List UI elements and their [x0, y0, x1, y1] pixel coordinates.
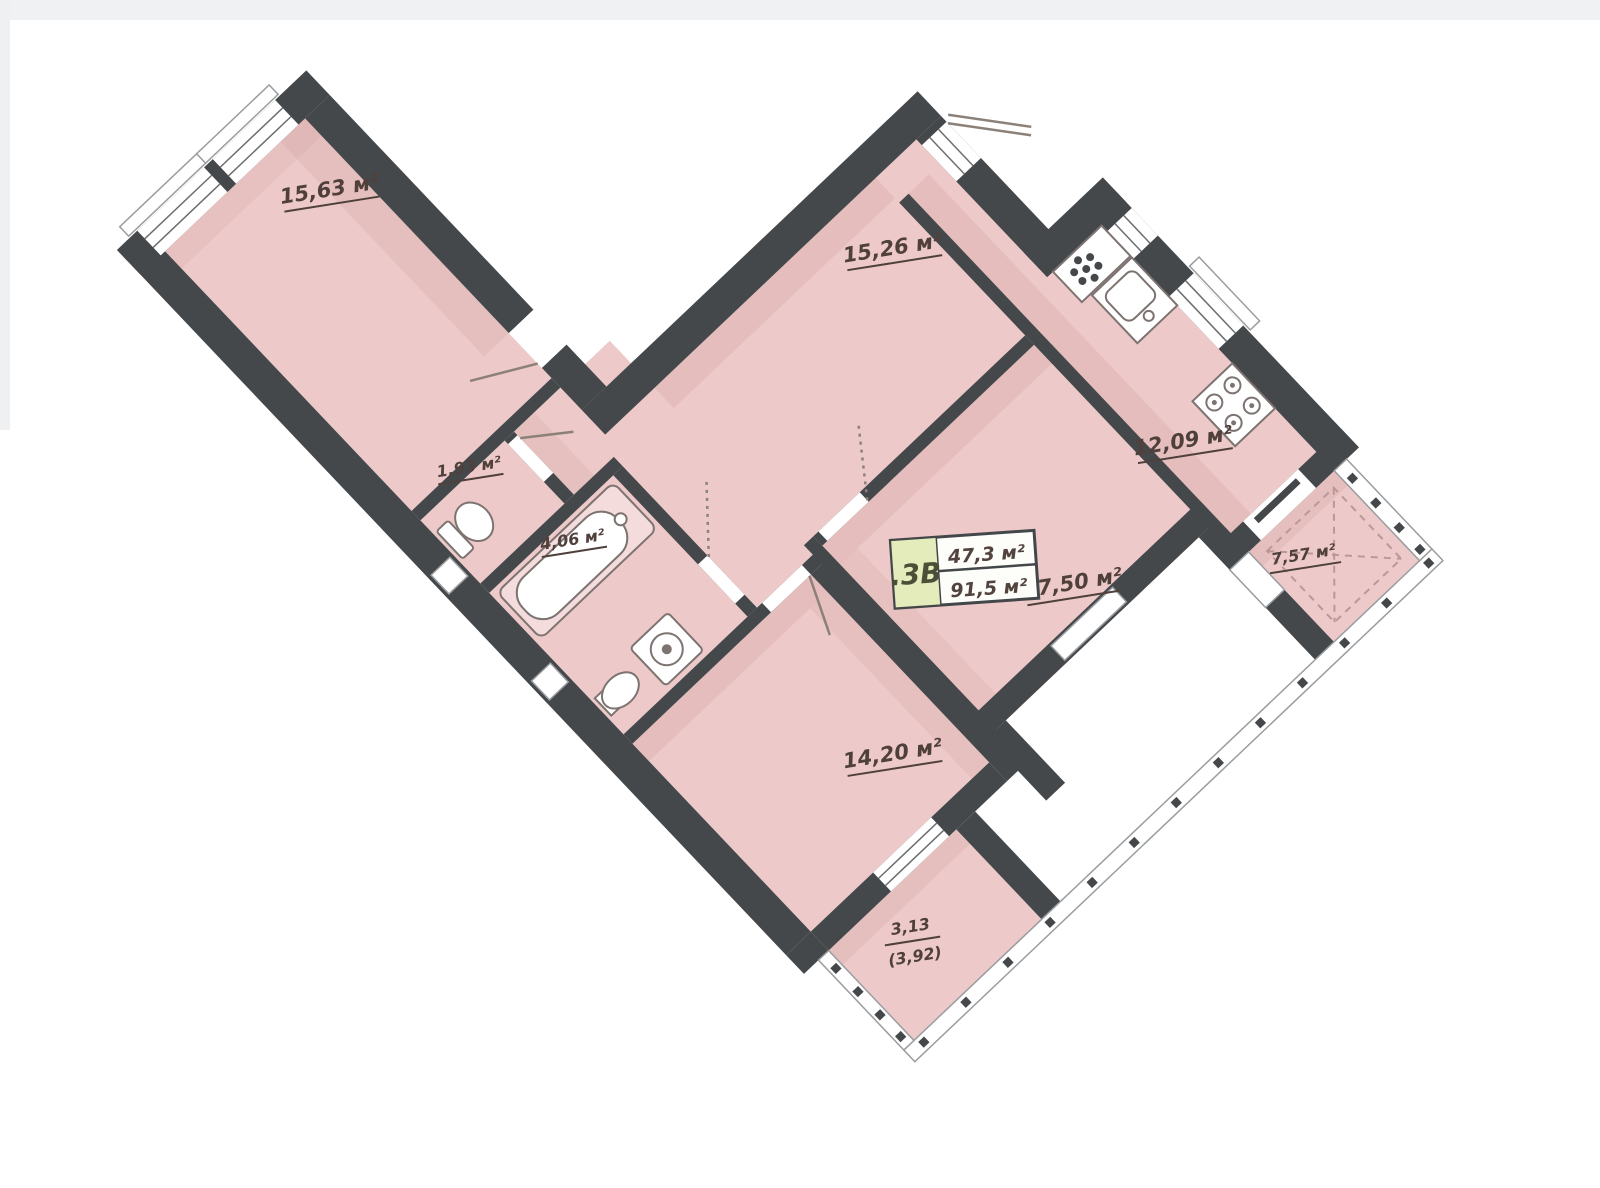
unit-code: .3В: [889, 556, 943, 593]
rotated-plan-group: 15,63 м² 15,26 м² 1,93 м² 4,06 м² 12,09 …: [107, 0, 1466, 1075]
page-left-strip: [0, 0, 10, 430]
unit-badge: .3В 47,3 м² 91,5 м²: [888, 530, 1039, 608]
floor-plan-canvas: 15,63 м² 15,26 м² 1,93 м² 4,06 м² 12,09 …: [0, 0, 1600, 1188]
page-top-strip: [0, 0, 1600, 20]
floor-plan-page: 15,63 м² 15,26 м² 1,93 м² 4,06 м² 12,09 …: [0, 0, 1600, 1188]
